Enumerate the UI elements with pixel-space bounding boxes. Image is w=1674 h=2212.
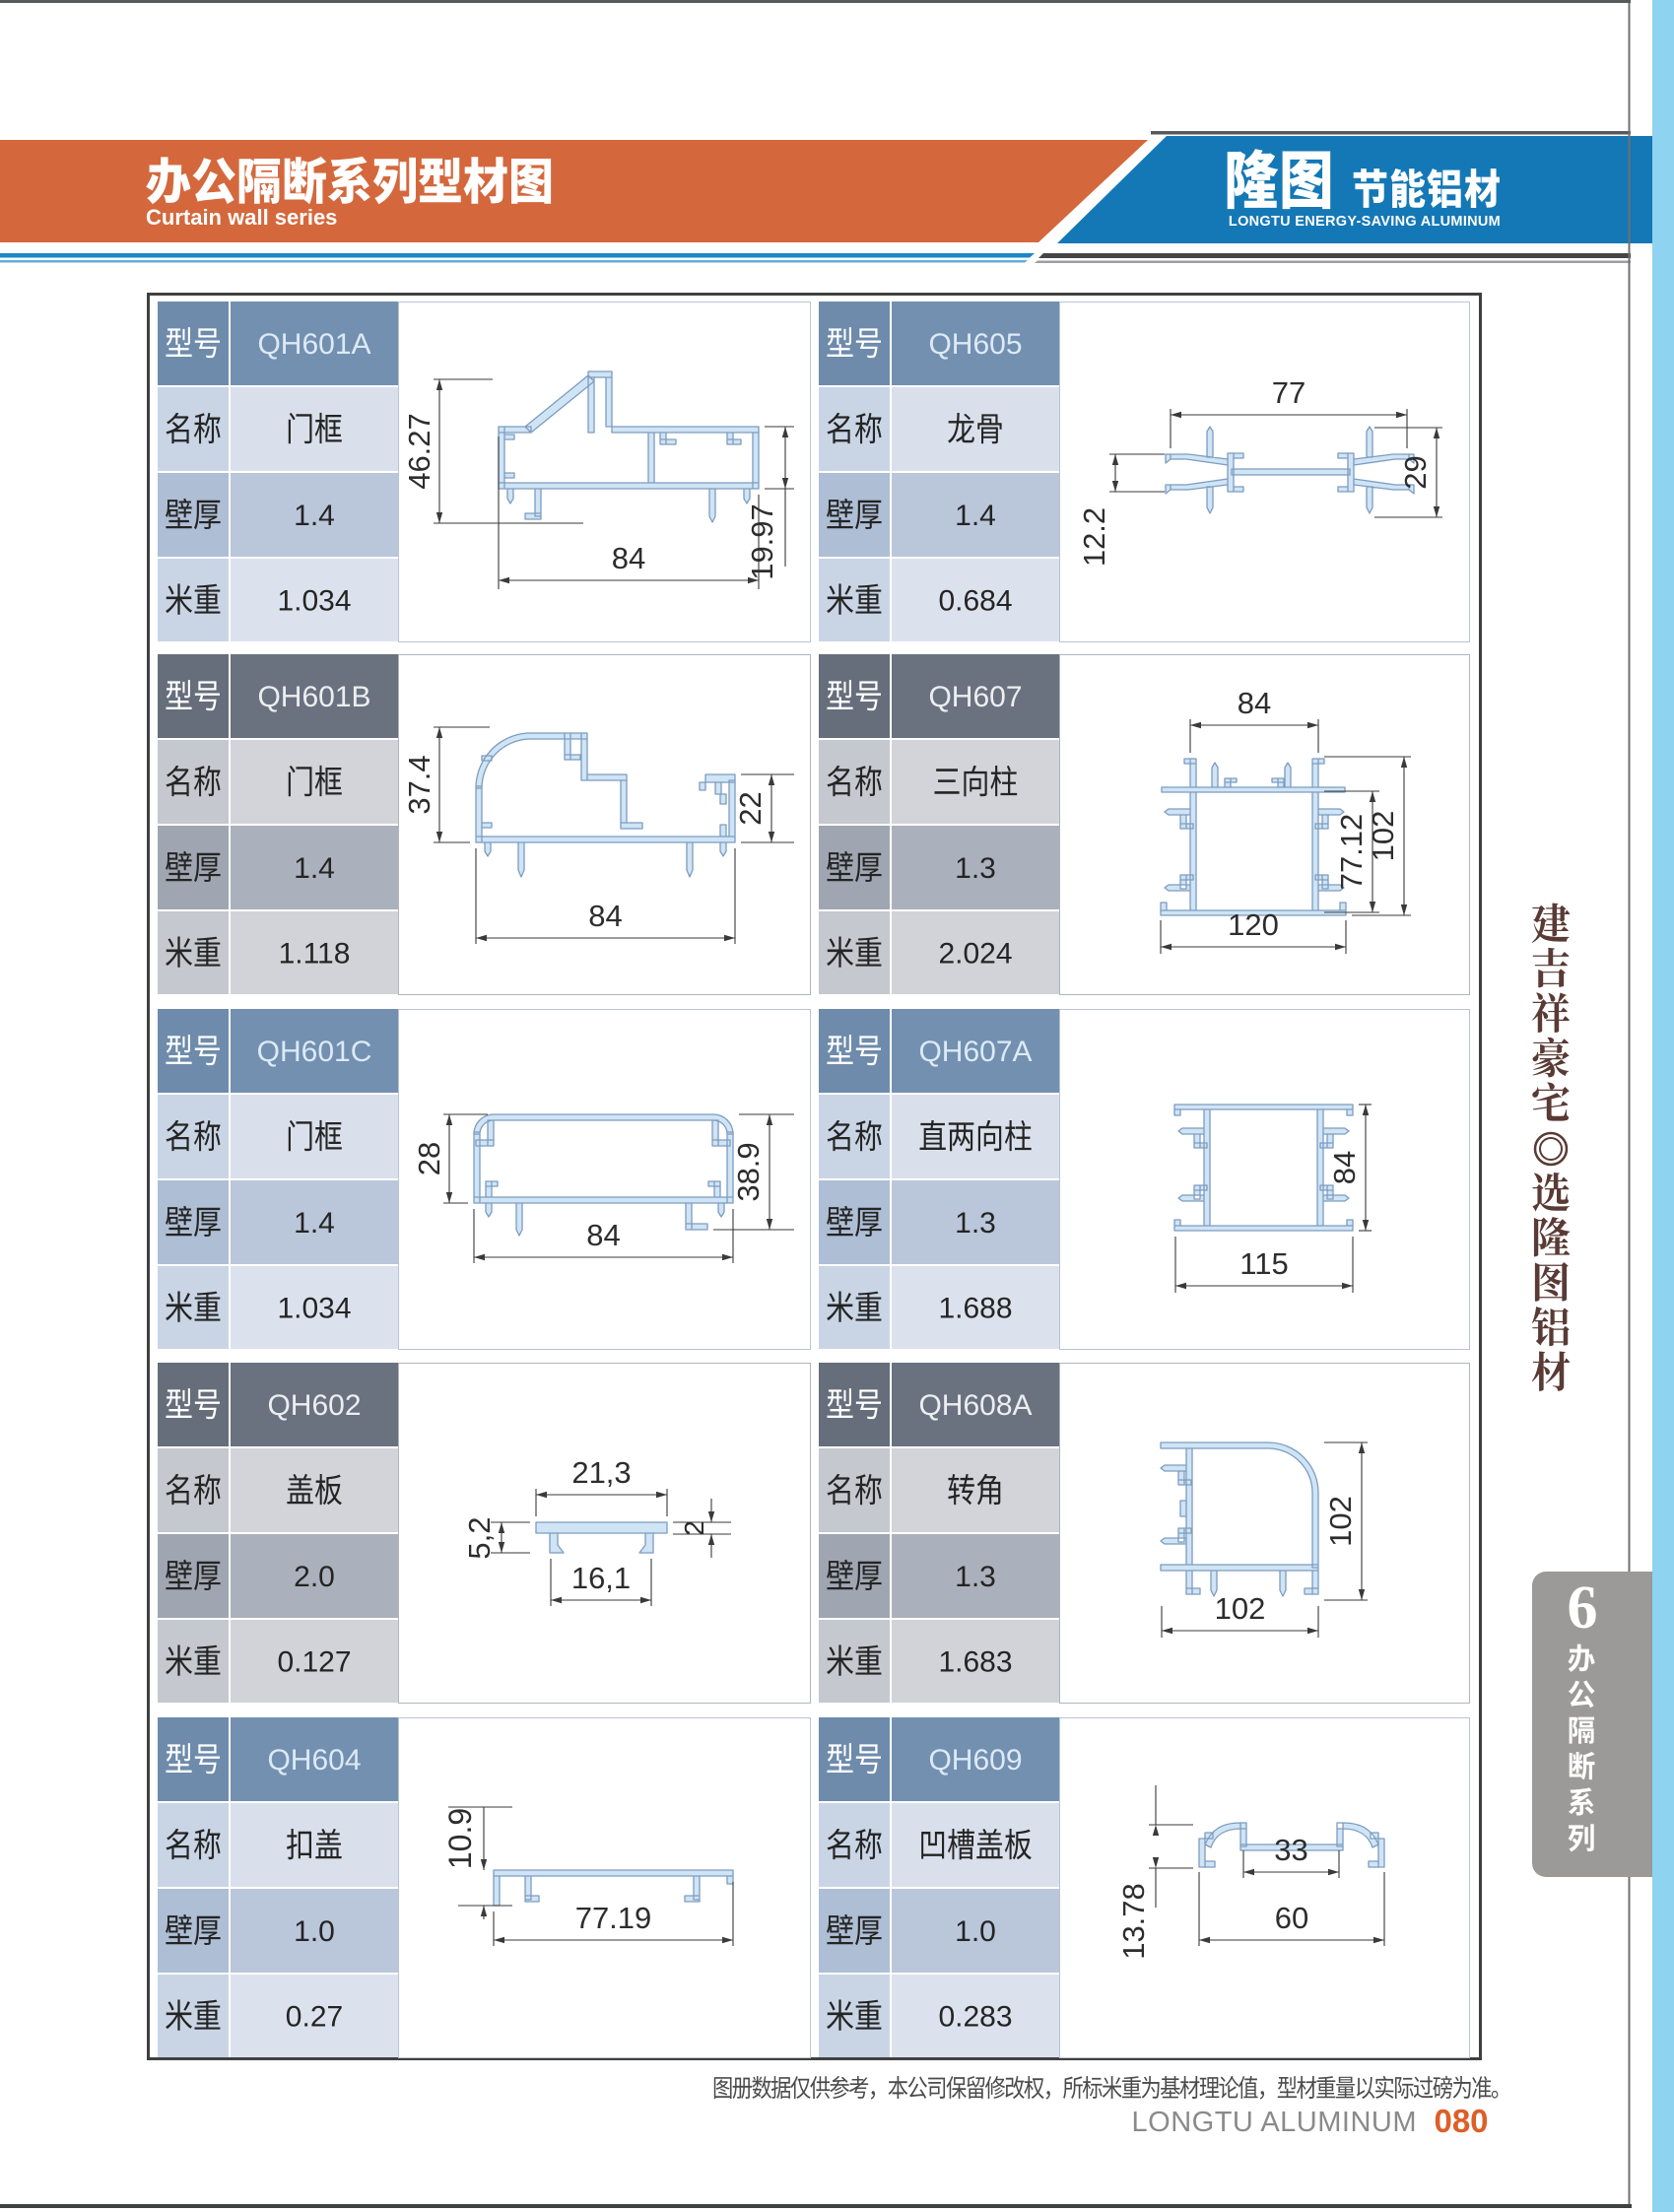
svg-text:12.2: 12.2 [1077,507,1111,567]
svg-text:LONGTU ENERGY-SAVING ALUMINUM: LONGTU ENERGY-SAVING ALUMINUM [1229,214,1501,230]
svg-text:1.683: 1.683 [938,1646,1012,1679]
svg-text:16,1: 16,1 [571,1561,631,1595]
svg-text:77.19: 77.19 [575,1901,652,1935]
svg-text:77: 77 [1272,375,1306,410]
svg-text:QH601B: QH601B [257,681,370,713]
svg-text:60: 60 [1275,1901,1308,1935]
svg-text:102: 102 [1366,811,1400,862]
svg-text:1.3: 1.3 [955,1561,996,1593]
svg-text:5,2: 5,2 [462,1516,497,1559]
svg-text:102: 102 [1323,1496,1358,1547]
svg-text:2.024: 2.024 [938,938,1012,971]
svg-text:080: 080 [1434,2103,1488,2139]
svg-text:1.0: 1.0 [294,1915,335,1948]
svg-text:Curtain wall series: Curtain wall series [146,205,337,230]
svg-text:0.283: 0.283 [938,2001,1012,2034]
svg-text:46.27: 46.27 [402,413,436,490]
svg-text:1.4: 1.4 [955,500,996,532]
svg-text:1.3: 1.3 [955,1207,996,1240]
svg-text:19.97: 19.97 [745,503,779,580]
svg-text:6: 6 [1568,1575,1598,1642]
svg-text:102: 102 [1215,1591,1266,1626]
svg-text:QH607A: QH607A [918,1036,1032,1068]
svg-text:0.127: 0.127 [277,1646,351,1679]
svg-text:84: 84 [586,1218,620,1252]
svg-text:1.688: 1.688 [938,1293,1012,1325]
svg-text:1.034: 1.034 [277,1293,351,1325]
svg-text:QH601A: QH601A [257,328,370,361]
svg-text:120: 120 [1228,907,1279,942]
svg-text:28: 28 [412,1142,446,1175]
svg-text:84: 84 [588,899,622,933]
svg-text:1.034: 1.034 [277,585,351,618]
svg-text:QH602: QH602 [267,1389,361,1422]
svg-text:QH607: QH607 [928,681,1022,713]
svg-text:84: 84 [612,541,645,575]
svg-text:1.4: 1.4 [294,500,335,532]
svg-text:10.9: 10.9 [442,1808,478,1869]
svg-text:LONGTU ALUMINUM: LONGTU ALUMINUM [1132,2107,1417,2138]
svg-text:1.3: 1.3 [955,852,996,885]
svg-text:115: 115 [1239,1246,1288,1281]
svg-text:1.4: 1.4 [294,852,335,885]
svg-text:37.4: 37.4 [402,755,436,814]
svg-text:2.0: 2.0 [294,1561,335,1593]
svg-text:QH608A: QH608A [918,1389,1032,1422]
svg-text:0.684: 0.684 [938,585,1012,618]
svg-text:0.27: 0.27 [286,2001,343,2034]
svg-text:29: 29 [1398,455,1433,489]
svg-text:38.9: 38.9 [731,1142,766,1201]
svg-text:84: 84 [1238,686,1271,720]
svg-text:84: 84 [1327,1151,1362,1184]
svg-text:1.118: 1.118 [279,938,351,971]
svg-text:QH609: QH609 [928,1744,1022,1776]
svg-text:33: 33 [1274,1833,1307,1867]
svg-text:77.12: 77.12 [1334,814,1369,891]
svg-text:QH604: QH604 [267,1744,361,1776]
svg-text:22: 22 [733,791,768,825]
svg-text:QH601C: QH601C [257,1036,372,1068]
svg-text:13.78: 13.78 [1116,1883,1151,1960]
svg-text:2: 2 [679,1520,709,1536]
svg-text:1.0: 1.0 [955,1915,996,1948]
svg-text:1.4: 1.4 [294,1207,335,1240]
svg-text:QH605: QH605 [928,328,1022,361]
svg-text:21,3: 21,3 [571,1455,631,1490]
